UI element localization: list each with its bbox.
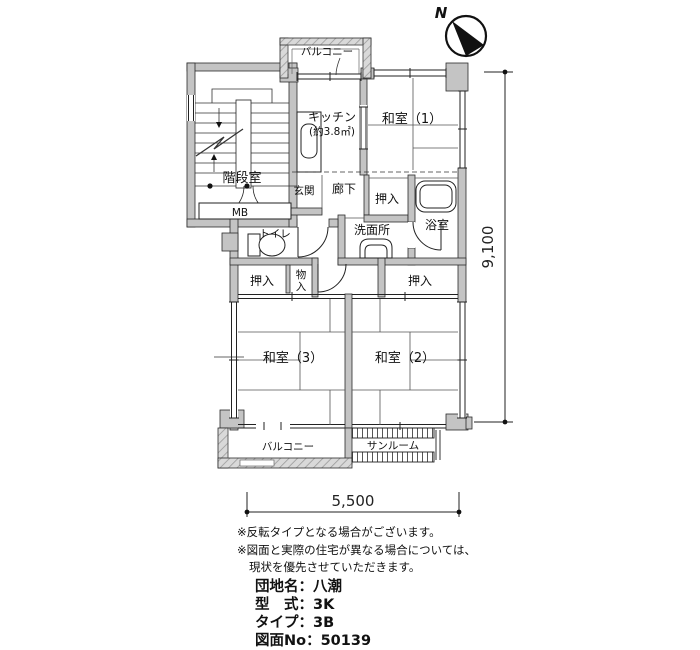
stairwell-label: 階段室 xyxy=(222,170,261,186)
balcony-top-label: バルコニー xyxy=(301,46,353,58)
kitchen-label: キッチン xyxy=(308,110,356,124)
closet-hall-label: 押入 xyxy=(375,192,399,206)
compass: N xyxy=(435,4,486,56)
floor-plan-page: N 9,100 5,500 バルコニー キッチン (約3.8㎡) 和室（1） 階… xyxy=(0,0,700,650)
compass-n-label: N xyxy=(435,4,448,22)
sunroom-label: サンルーム xyxy=(367,440,419,452)
info-block: 団地名：八潮 型 式：3K タイプ：3B 図面No：50139 xyxy=(255,577,371,649)
entrance-label: 玄関 xyxy=(294,184,315,197)
note-line-3: 現状を優先させていただきます。 xyxy=(249,560,420,574)
note-line-2: ※図面と実際の住宅が異なる場合については、 xyxy=(237,543,476,557)
bathtub-inner xyxy=(420,185,452,208)
storage-label-2: 入 xyxy=(296,281,307,293)
info-danchi-name: 団地名：八潮 xyxy=(255,577,342,595)
balcony-bottom-label: バルコニー xyxy=(262,441,314,453)
info-type: タイプ：3B xyxy=(255,614,334,631)
notes-block: ※反転タイプとなる場合がございます。 ※図面と実際の住宅が異なる場合については、… xyxy=(237,525,476,574)
storage-label-1: 物 xyxy=(296,268,307,281)
floor-plan-drawing: N 9,100 5,500 バルコニー キッチン (約3.8㎡) 和室（1） 階… xyxy=(0,0,700,650)
meter-box-label: MB xyxy=(232,207,248,219)
staircase xyxy=(195,89,297,216)
note-line-1: ※反転タイプとなる場合がございます。 xyxy=(237,525,441,539)
washroom-label: 洗面所 xyxy=(354,223,390,237)
closet-left-label: 押入 xyxy=(250,274,274,288)
toilet-tank xyxy=(248,234,260,256)
washitsu2-label: 和室（2） xyxy=(375,350,435,366)
width-dimension-label: 5,500 xyxy=(332,492,375,510)
toilet-label: トイレ xyxy=(259,228,291,240)
info-zumen-no: 図面No：50139 xyxy=(255,632,371,649)
washitsu3-label: 和室（3） xyxy=(263,350,323,366)
kitchen-area-label: (約3.8㎡) xyxy=(309,125,355,138)
washitsu1-label: 和室（1） xyxy=(382,111,442,127)
closet-right-label: 押入 xyxy=(408,274,432,288)
balcony-partition-panel xyxy=(240,460,274,466)
depth-dimension-label: 9,100 xyxy=(479,226,497,269)
bath-label: 浴室 xyxy=(425,217,449,232)
hallway-label: 廊下 xyxy=(332,181,356,196)
info-katashiki: 型 式：3K xyxy=(255,595,335,613)
